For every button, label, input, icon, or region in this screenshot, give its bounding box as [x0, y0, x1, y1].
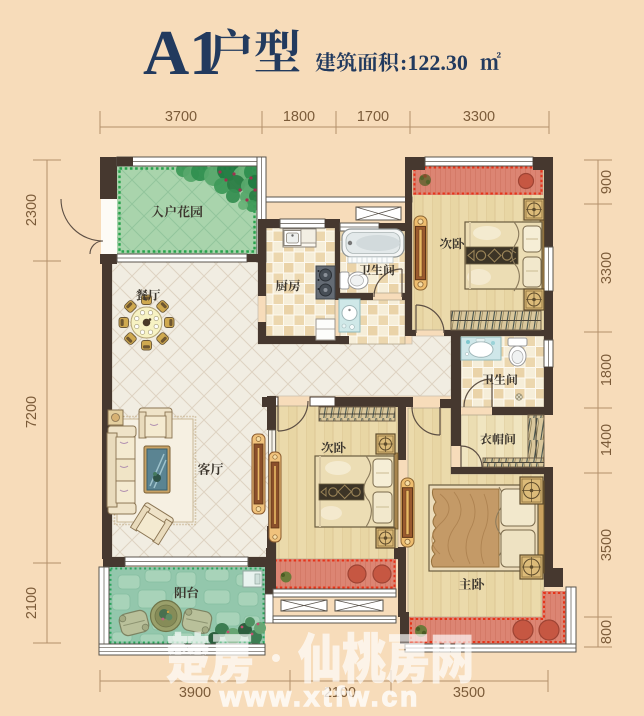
svg-text:3700: 3700 [165, 109, 197, 125]
svg-text:3300: 3300 [463, 109, 495, 125]
svg-text:3500: 3500 [599, 529, 615, 561]
svg-text::122.30: :122.30 [400, 50, 468, 75]
svg-text:7200: 7200 [24, 396, 40, 428]
svg-text:3500: 3500 [453, 685, 485, 701]
svg-text:A1: A1 [143, 17, 221, 88]
svg-text:3300: 3300 [599, 252, 615, 284]
svg-text:1700: 1700 [357, 109, 389, 125]
svg-text:2100: 2100 [24, 587, 40, 619]
svg-text:3900: 3900 [179, 685, 211, 701]
svg-text:800: 800 [599, 620, 615, 644]
svg-text:900: 900 [599, 170, 615, 194]
svg-text:2300: 2300 [24, 194, 40, 226]
svg-text:www.xtfw.cn: www.xtfw.cn [219, 681, 421, 711]
svg-text:1800: 1800 [283, 109, 315, 125]
svg-text:1800: 1800 [599, 354, 615, 386]
svg-text:1400: 1400 [599, 424, 615, 456]
